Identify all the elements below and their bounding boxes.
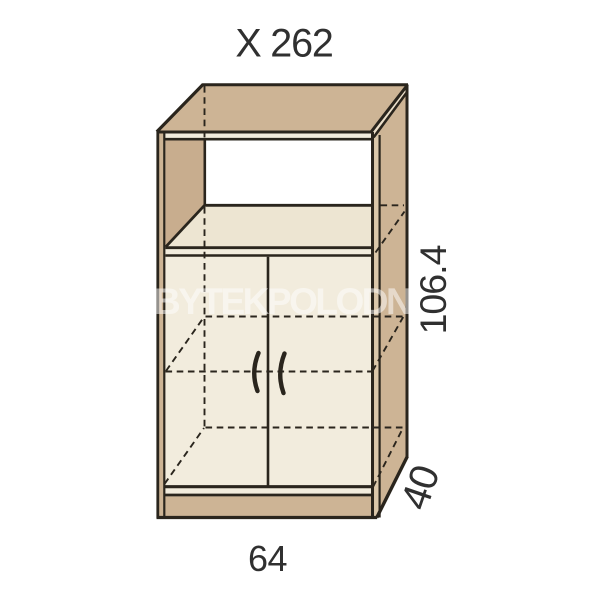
svg-text:X 262: X 262 [235, 22, 332, 66]
svg-text:BYTEKPOLODN: BYTEKPOLODN [154, 281, 411, 322]
svg-text:64: 64 [248, 538, 287, 579]
svg-text:106.4: 106.4 [412, 245, 454, 334]
